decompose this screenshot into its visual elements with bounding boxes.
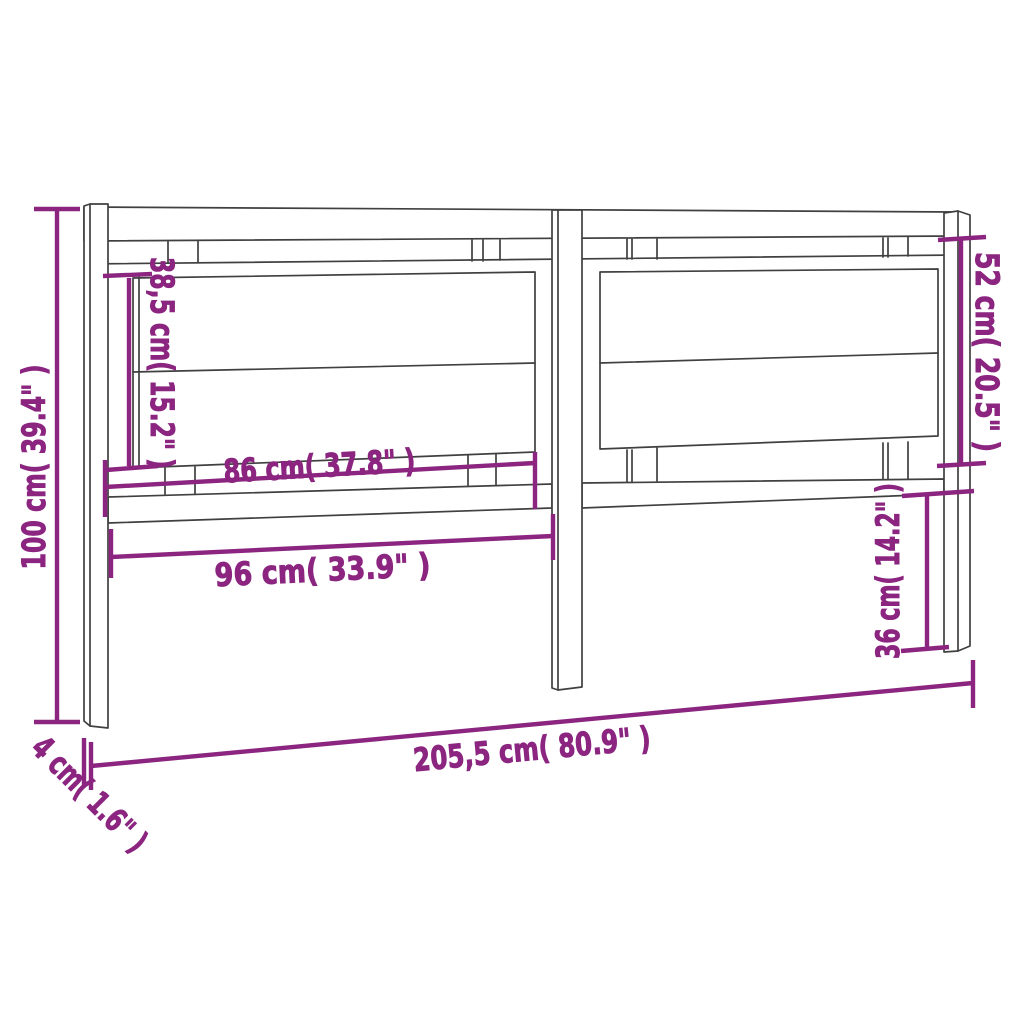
headboard-dimension-diagram: 100 cm( 39.4" ) 38,5 cm( 15.2" ) 86 cm( … [0, 0, 1024, 1024]
dim-label-opening-width: 96 cm( 33.9" ) [214, 546, 432, 595]
right-post [944, 211, 970, 652]
lower-rail-left [108, 484, 552, 523]
dim-overall-width: 205,5 cm( 80.9" ) [91, 660, 973, 790]
top-rail [84, 207, 958, 241]
back-rail-edge [84, 255, 958, 264]
left-panel [133, 272, 535, 468]
right-panel [600, 269, 938, 449]
headboard-outline [84, 204, 970, 728]
dim-label-panel-height-left: 38,5 cm( 15.2" ) [143, 257, 181, 469]
dim-opening-width: 96 cm( 33.9" ) [111, 514, 553, 594]
diagram-canvas: 100 cm( 39.4" ) 38,5 cm( 15.2" ) 86 cm( … [0, 0, 1024, 1024]
center-post [552, 210, 582, 690]
dim-label-leg-height-right: 36 cm( 14.2" ) [869, 483, 907, 659]
dim-label-panel-height-right: 52 cm( 20.5" ) [968, 252, 1006, 452]
dim-label-overall-height: 100 cm( 39.4" ) [15, 365, 53, 570]
dim-overall-height: 100 cm( 39.4" ) [15, 209, 80, 722]
dim-label-overall-width: 205,5 cm( 80.9" ) [412, 719, 653, 779]
